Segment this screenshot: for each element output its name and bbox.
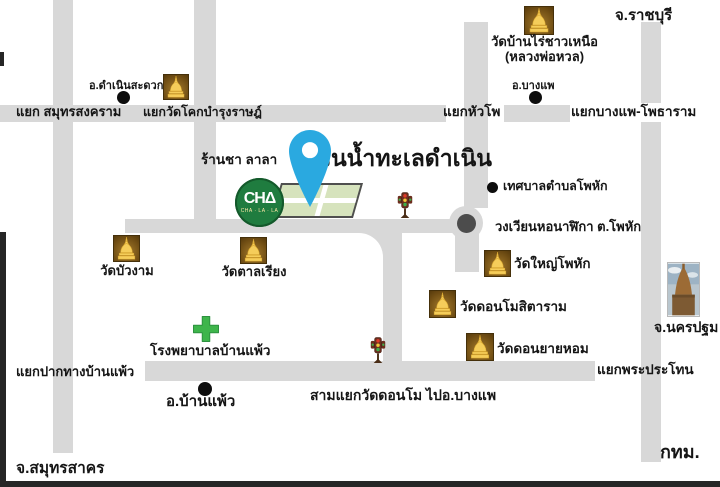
- label-clock-tower-roundabout: วงเวียนหอนาฬิกา ต.โพหัก: [495, 220, 641, 235]
- label-province-nakhon-pathom: จ.นครปฐม: [654, 320, 718, 336]
- shop-name: ร้านชา ลาลา: [201, 152, 277, 167]
- label-phohak-municipality: เทศบาลตำบลโพหัก: [503, 179, 608, 193]
- road-far-right-vertical-upper: [641, 22, 661, 103]
- label-wat-donyaihom: วัดดอนยายหอม: [497, 341, 589, 356]
- label-junction-hua-pho: แยกหัวโพ: [443, 104, 500, 119]
- label-wat-tanriang: วัดตาลเรียง: [210, 265, 298, 280]
- temple-icon-wat-tanriang: [240, 237, 267, 264]
- traffic-light-icon-lower: [370, 337, 386, 364]
- temple-icon-wat-donmo: [429, 290, 456, 318]
- road-middle-horizontal: [125, 219, 455, 233]
- temple-icon-wat-buangam: [113, 235, 140, 262]
- label-junction-sam-yaek-wat-donmo: สามแยกวัดดอนโม ไปอ.บางแพ: [310, 388, 496, 404]
- roundabout-island: [457, 214, 476, 233]
- wat-banrai-line2: (หลวงพ่อหวล): [467, 50, 622, 65]
- temple-icon-wat-donyaihom: [466, 333, 494, 361]
- label-wat-donmo: วัดดอนโมสิตาราม: [460, 299, 567, 314]
- waterpark-title: สวนน้ำทะเลดำเนิน: [304, 146, 492, 172]
- logo-text: CHΔ: [244, 191, 276, 207]
- phohak-municipality-dot: [487, 182, 498, 193]
- label-province-samut-sakhon: จ.สมุทรสาคร: [16, 460, 104, 477]
- map-canvas: สวนน้ำทะเลดำเนิน ร้านชา ลาลา CHΔ CHA · L…: [0, 0, 720, 487]
- logo-subtext: CHA · LA · LA: [241, 208, 279, 214]
- label-bang-phae: อ.บางแพ: [512, 80, 555, 92]
- label-junction-bang-phae-photharam: แยกบางแพ-โพธาราม: [571, 104, 696, 119]
- chedi-photo: [667, 262, 700, 317]
- label-junction-phra-prathon: แยกพระประโทน: [597, 362, 694, 377]
- location-pin-icon: [289, 129, 331, 208]
- label-wat-buangam: วัดบัวงาม: [82, 264, 172, 279]
- road-left-vertical: [53, 0, 73, 453]
- label-junction-samut-songkhram: แยก สมุทรสงคราม: [16, 105, 121, 120]
- label-hospital: โรงพยาบาลบ้านแพ้ว: [150, 343, 270, 358]
- label-wat-banrai: วัดบ้านไร่ชาวเหนือ (หลวงพ่อหวล): [467, 35, 622, 64]
- road-far-right-vertical-lower: [641, 122, 661, 462]
- hospital-cross-icon: [191, 314, 221, 344]
- wat-banrai-line1: วัดบ้านไร่ชาวเหนือ: [467, 35, 622, 50]
- temple-icon-wat-yai-phohak: [484, 250, 511, 277]
- photo-edge-bottom: [0, 481, 720, 487]
- temple-icon-wat-banrai: [524, 6, 554, 35]
- photo-edge-notch: [0, 52, 4, 66]
- cha-la-la-logo: CHΔ CHA · LA · LA: [235, 178, 284, 227]
- traffic-light-icon-upper: [397, 192, 413, 219]
- temple-icon-damnoen: [163, 74, 189, 100]
- road-top-horizontal-east: [504, 105, 570, 122]
- damnoen-town-dot: [117, 91, 130, 104]
- label-bangkok: กทม.: [660, 442, 700, 462]
- label-wat-yai-phohak: วัดใหญ่โพหัก: [514, 256, 591, 271]
- label-province-ratchaburi: จ.ราชบุรี: [615, 8, 672, 25]
- label-junction-wat-khok-bamrung: แยกวัดโคกบำรุงราษฎ์: [143, 105, 262, 119]
- photo-edge-left: [0, 232, 6, 487]
- road-corner-fillet: [359, 233, 383, 257]
- bang-phae-town-dot: [529, 91, 542, 104]
- label-junction-pak-thang-ban-phaeo: แยกปากทางบ้านแพ้ว: [16, 365, 134, 380]
- label-damnoen-saduak: อ.ดำเนินสะดวก: [89, 80, 163, 92]
- label-ban-phaeo: อ.บ้านแพ้ว: [166, 394, 235, 411]
